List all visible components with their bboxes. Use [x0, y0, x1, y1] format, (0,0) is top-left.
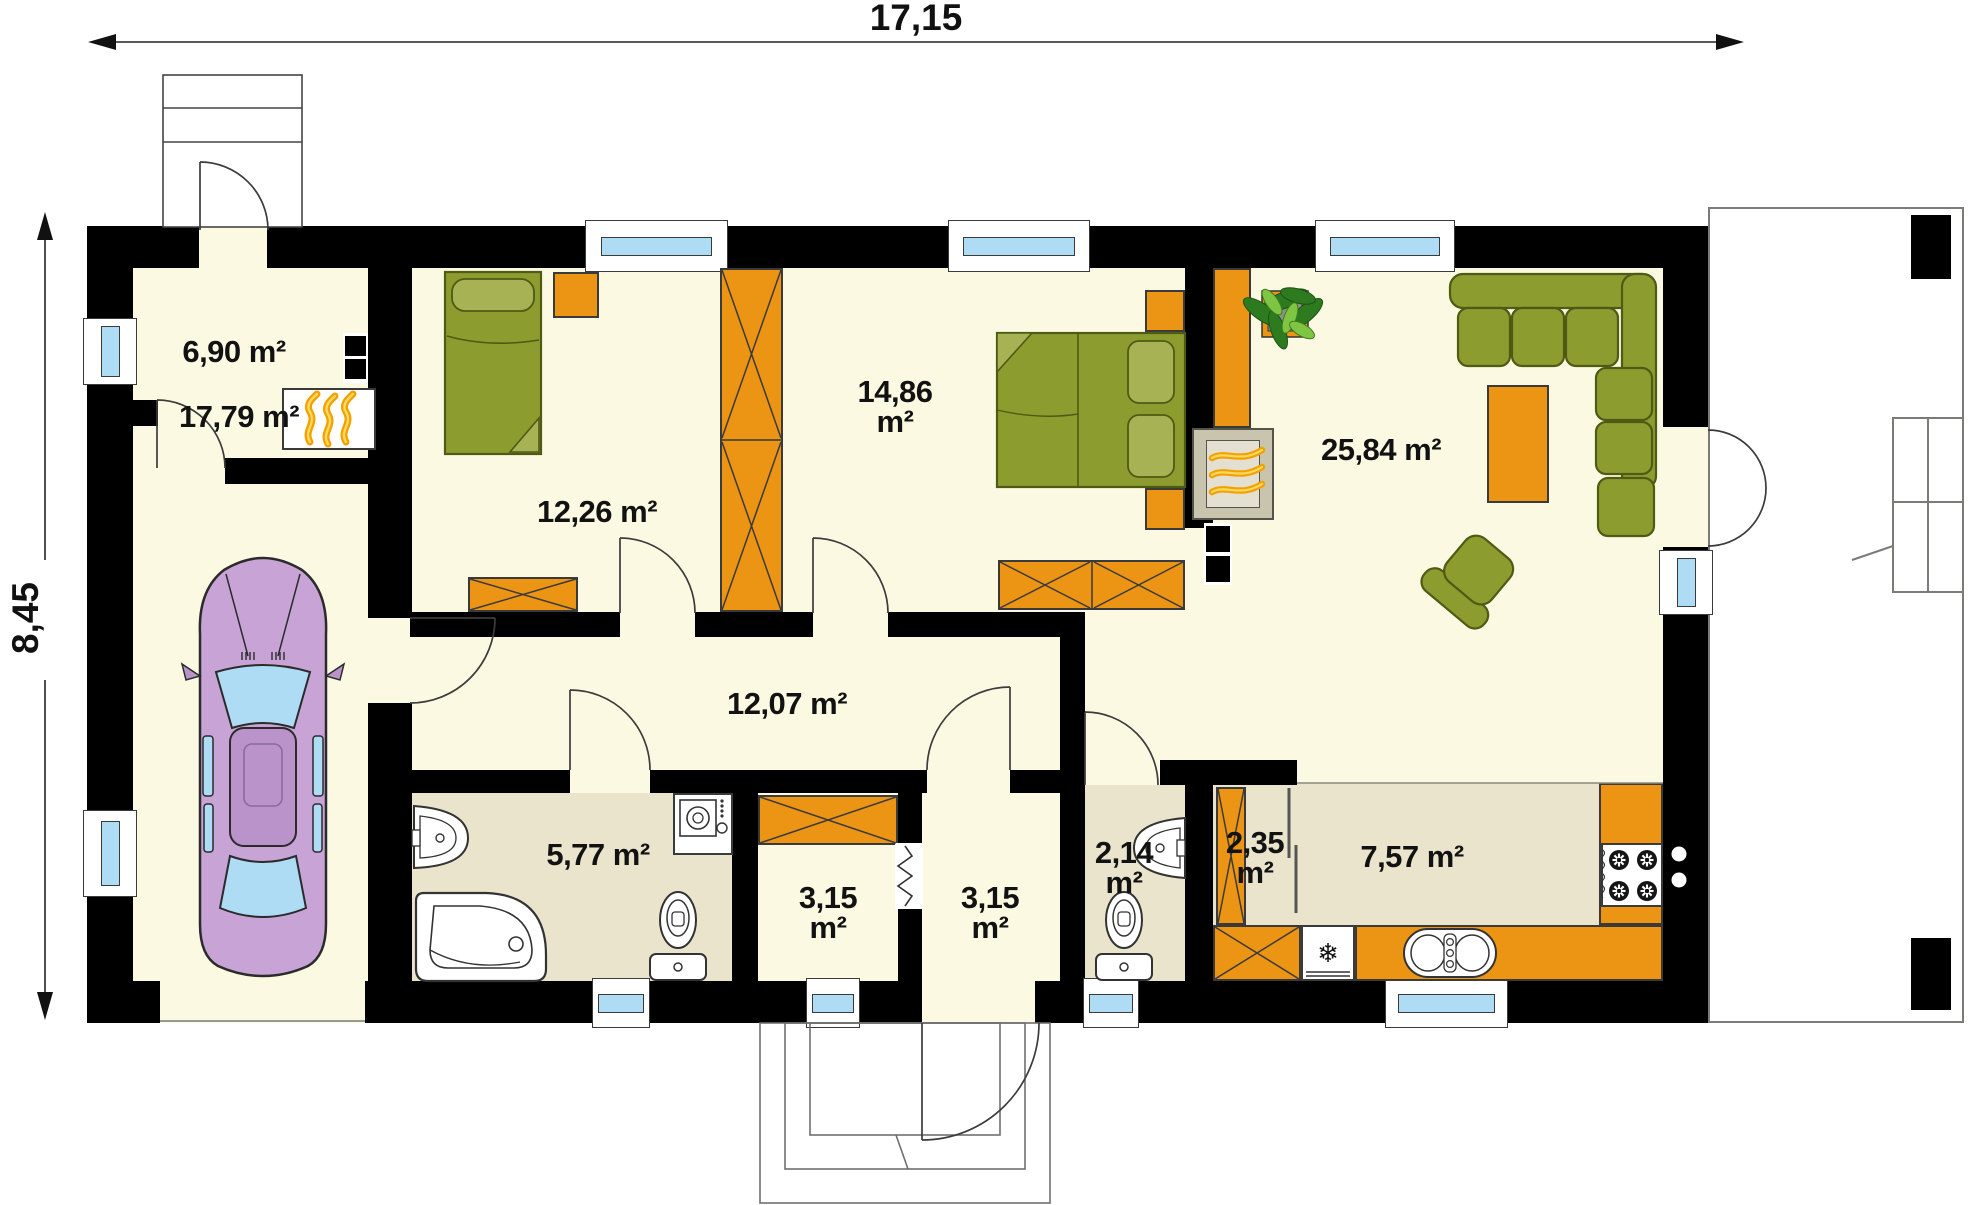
- area-unit: m²: [961, 913, 1019, 943]
- wall-segment: [225, 458, 368, 484]
- area-value: 2,14: [1095, 838, 1153, 868]
- wall-segment: [732, 793, 758, 981]
- nightstand: [553, 272, 599, 318]
- wall-segment: [650, 770, 927, 793]
- area-value: 14,86: [857, 377, 932, 407]
- window: [1659, 550, 1713, 615]
- wardrobe: [758, 795, 898, 845]
- room-label-garage: 17,79 m²: [179, 399, 299, 435]
- wall-segment: [1060, 612, 1085, 981]
- room-label-pantry: 2,35 m²: [1226, 828, 1284, 888]
- nightstand: [1145, 488, 1185, 530]
- window: [1083, 978, 1139, 1028]
- chimney-duct: [1213, 268, 1251, 428]
- dresser: [468, 577, 578, 612]
- wall-segment: [1185, 785, 1213, 981]
- stove: [1601, 843, 1663, 907]
- wardrobe: [998, 560, 1185, 610]
- room-label-bedroom-left: 12,26 m²: [537, 494, 657, 530]
- wall-top: [87, 226, 1708, 268]
- arrow-down-icon: [37, 992, 53, 1020]
- wardrobe-column: [720, 268, 783, 612]
- wall-right-upper: [1663, 226, 1708, 427]
- area-unit: m²: [857, 407, 932, 437]
- terrace-door-opening: [1663, 427, 1708, 547]
- area-unit: m²: [1095, 868, 1153, 898]
- area-unit: m²: [799, 913, 857, 943]
- window: [585, 220, 728, 272]
- arrow-up-icon: [37, 212, 53, 240]
- nightstand: [1145, 290, 1185, 332]
- room-label-hall: 12,07 m²: [727, 686, 847, 722]
- area-value: 2,35: [1226, 828, 1284, 858]
- room-label-living: 25,84 m²: [1321, 432, 1441, 468]
- boiler-entry-opening: [199, 226, 267, 268]
- wall-segment: [888, 612, 1060, 637]
- entrance-steps: [760, 1023, 1050, 1203]
- room-label-bedroom-right: 14,86 m²: [857, 377, 932, 437]
- garage-door-opening: [160, 981, 365, 1023]
- terrace-pillar-top: [1911, 215, 1951, 279]
- arrow-right-icon: [1716, 34, 1744, 50]
- vent-gap: [895, 843, 923, 909]
- room-label-wardrobe: 3,15 m²: [799, 883, 857, 943]
- room-label-kitchen: 7,57 m²: [1360, 839, 1463, 875]
- wall-segment: [368, 703, 412, 981]
- wall-right-lower: [1663, 547, 1708, 1023]
- window: [806, 978, 860, 1028]
- arrow-left-icon: [88, 34, 116, 50]
- window: [1315, 220, 1455, 272]
- window: [948, 220, 1090, 272]
- terrace: [1708, 207, 1964, 1023]
- niche-cell: [345, 336, 366, 356]
- kitchen-corner-cabinet: [1213, 925, 1301, 981]
- area-value: 3,15: [961, 883, 1019, 913]
- fridge: [1301, 925, 1355, 981]
- area-value: 3,15: [799, 883, 857, 913]
- room-label-vestibule: 3,15 m²: [961, 883, 1019, 943]
- wall-segment: [133, 400, 158, 426]
- dimension-width: 17,15: [870, 0, 963, 39]
- niche-cell: [345, 359, 366, 379]
- room-label-boiler: 6,90 m²: [182, 334, 285, 370]
- window: [1385, 978, 1508, 1028]
- wall-segment: [1010, 770, 1085, 793]
- coffee-table: [1487, 385, 1549, 503]
- window: [592, 978, 650, 1028]
- fireplace-insert: [1206, 440, 1260, 508]
- dimension-height: 8,45: [5, 582, 47, 654]
- washing-machine: [673, 793, 733, 855]
- niche-cell: [1206, 526, 1230, 552]
- niche-cell: [1206, 556, 1230, 582]
- room-label-wc: 2,14 m²: [1095, 838, 1153, 898]
- wall-segment: [412, 770, 570, 793]
- floor-plan: ❄: [0, 0, 1968, 1205]
- wall-segment: [1160, 760, 1297, 785]
- area-unit: m²: [1226, 858, 1284, 888]
- terrace-pillar-bottom: [1911, 938, 1951, 1010]
- room-label-bathroom: 5,77 m²: [546, 837, 649, 873]
- window: [83, 318, 137, 385]
- entry-porch: [163, 75, 302, 227]
- wall-segment: [410, 612, 620, 637]
- window: [83, 810, 137, 897]
- entrance-opening: [922, 981, 1035, 1023]
- kitchen-counter: [1355, 925, 1663, 981]
- wall-segment: [695, 612, 813, 637]
